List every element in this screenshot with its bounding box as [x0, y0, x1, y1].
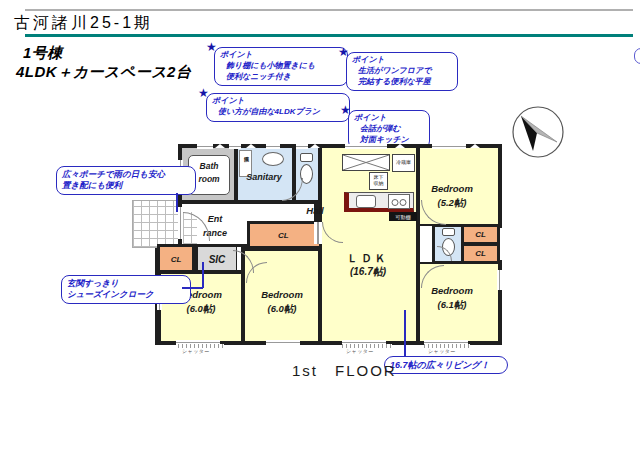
closet-label: CL — [278, 231, 289, 240]
kitchen-sink-icon — [356, 195, 376, 208]
closet-label: CL — [171, 255, 182, 264]
closet-cl-4: CL — [247, 221, 322, 249]
window — [229, 144, 241, 149]
movable-shelf: 可動棚 — [389, 212, 417, 221]
bedroom-2-label: Bedroom (6.0帖) — [246, 288, 318, 317]
leader-line — [404, 310, 406, 356]
plan-type: 4LDK＋カースペース2台 — [16, 63, 191, 82]
closet-label: CL — [475, 230, 486, 239]
refrigerator-label: 冷蔵庫 — [396, 160, 411, 166]
door-opening — [314, 222, 322, 244]
point-label: ポイント — [220, 50, 342, 61]
leader-line — [202, 262, 204, 288]
stove-icon — [388, 194, 410, 209]
window — [432, 144, 466, 149]
compass-north-icon — [509, 105, 567, 159]
leader-line — [176, 193, 178, 212]
closet-label: CL — [475, 249, 486, 258]
window — [197, 144, 213, 149]
callout-entrance: 玄関すっきり シューズインクローク — [61, 275, 191, 304]
closet-cl-3: CL — [461, 243, 500, 264]
point-box-one-floor: ポイント 生活がワンフロアで 完結する便利な平屋 — [346, 52, 458, 91]
toilet-icon — [300, 153, 313, 162]
callout-porch: 広々ポーチで雨の日も安心 置き配にも便利 — [56, 166, 196, 195]
point-text-one-floor: 生活がワンフロアで 完結する便利な平屋 — [352, 66, 452, 88]
shutter-label: シャッター — [428, 348, 456, 354]
point-label: ポイント — [212, 96, 344, 107]
point-label: ポイント — [352, 55, 452, 66]
window — [296, 144, 308, 149]
point-label: ポイント — [354, 113, 424, 124]
closet-cl-2: CL — [461, 224, 500, 245]
porch-tiles — [132, 200, 181, 248]
floor-storage-label: 床下 収納 — [374, 175, 384, 187]
clipped-balloon-edge — [634, 48, 640, 64]
window — [345, 144, 387, 149]
floor-storage: 床下 収納 — [369, 172, 388, 190]
sic-label: SIC — [209, 254, 226, 265]
sink-icon — [262, 152, 284, 166]
point-text-kitchen: 会話が弾む 対面キッチン — [354, 124, 424, 146]
building-number: 1号棟 — [23, 44, 63, 63]
toilet-icon — [442, 228, 455, 236]
ldk-size-label: (16.7帖) — [332, 264, 404, 279]
bedroom-61-label: Bedroom (6.1帖) — [416, 284, 488, 313]
floor-label: 1st FLOOR — [292, 362, 397, 381]
flyer-page: 古河諸川25-1期 1号棟 4LDK＋カースペース2台 ★ ポイント 飾り棚にも… — [0, 0, 640, 453]
window — [497, 270, 502, 290]
movable-shelf-label: 可動棚 — [396, 214, 411, 220]
page-title: 古河諸川25-1期 — [14, 13, 153, 34]
window — [266, 340, 300, 345]
kitchen-cabinet — [342, 154, 390, 171]
point-box-free-plan: ポイント 使い方が自由な4LDKプラン — [206, 93, 350, 122]
shutter-label: シャッター — [182, 348, 210, 354]
shutter-label: シャッター — [346, 348, 374, 354]
point-text-niche: 飾り棚にも小物置きにも 便利なニッチ付き — [220, 61, 342, 83]
refrigerator: 冷蔵庫 — [392, 154, 415, 172]
point-box-niche: ポイント 飾り棚にも小物置きにも 便利なニッチ付き — [214, 47, 348, 86]
window — [266, 144, 280, 149]
top-divider — [25, 9, 633, 11]
leader-line — [182, 287, 203, 289]
point-text-free-plan: 使い方が自由な4LDKプラン — [212, 107, 344, 118]
hall-label: Hall — [296, 204, 334, 218]
teal-divider — [25, 34, 633, 37]
callout-living: 16.7帖の広々リビング！ — [384, 356, 508, 374]
